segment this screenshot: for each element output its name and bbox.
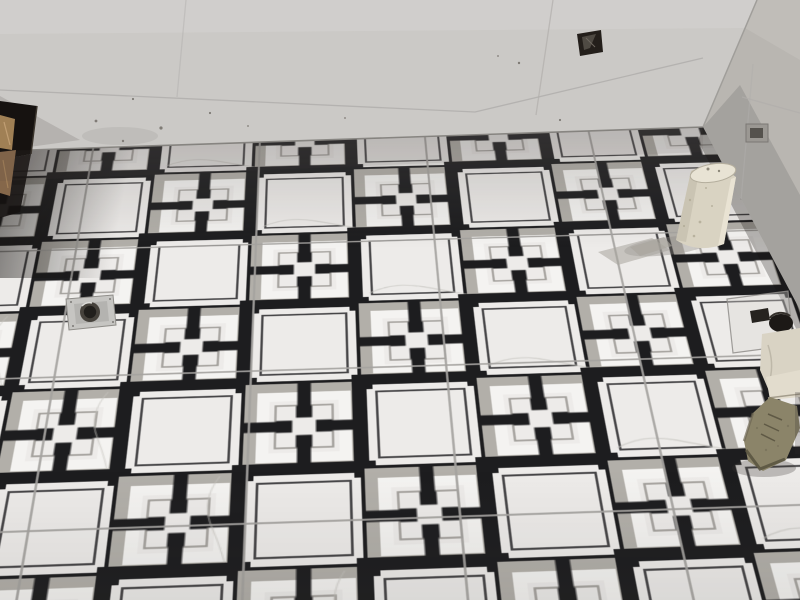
back-wall bbox=[0, 0, 757, 151]
walls-and-props bbox=[0, 0, 800, 600]
rough-drain-hole bbox=[769, 314, 793, 332]
electrical-box-hole bbox=[577, 30, 603, 56]
bathroom-renovation-photo: Newly tiled bathroom under renovation: g… bbox=[0, 0, 800, 600]
wall-smudge bbox=[82, 127, 158, 145]
edge-shadow bbox=[795, 392, 800, 454]
drain-hole bbox=[84, 306, 96, 318]
standpipe bbox=[598, 161, 737, 265]
floor-drain bbox=[66, 295, 116, 330]
outlet-box bbox=[746, 124, 768, 142]
